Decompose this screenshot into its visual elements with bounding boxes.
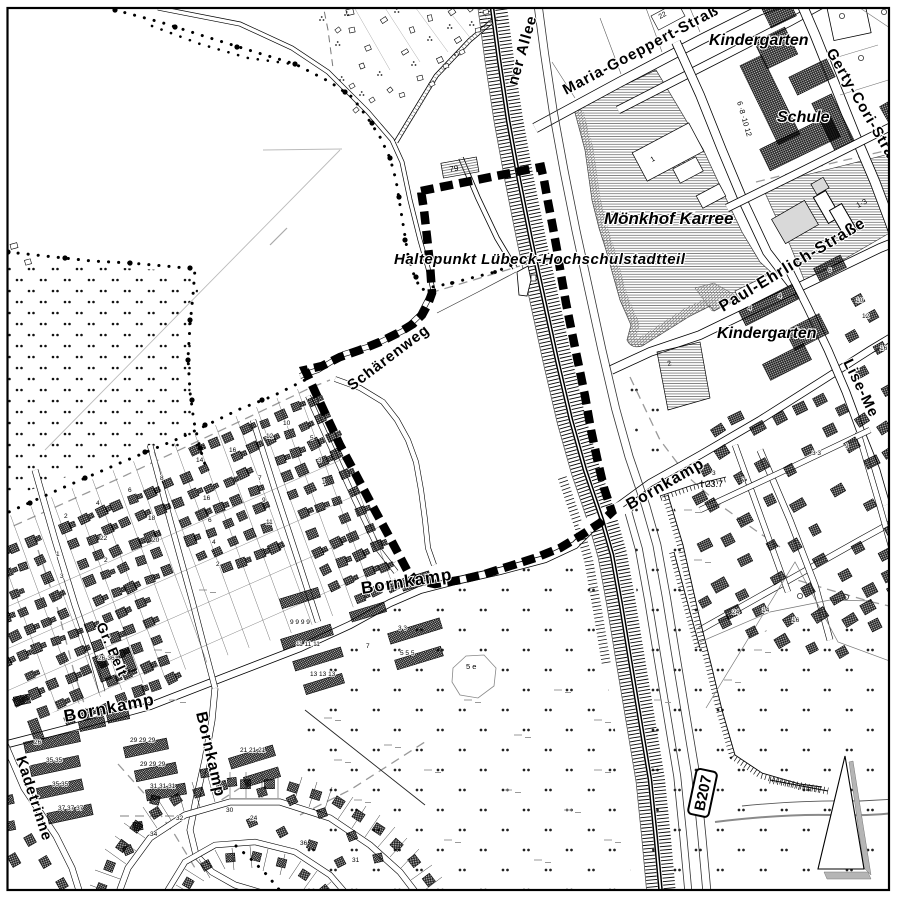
svg-text:9: 9	[845, 443, 849, 450]
svg-text:✝23.7: ✝23.7	[698, 479, 723, 489]
svg-text:13 13 13: 13 13 13	[310, 671, 336, 678]
svg-text:35 35: 35 35	[46, 757, 63, 764]
svg-text:30: 30	[226, 807, 234, 814]
svg-text:9 9 9 9: 9 9 9 9	[290, 619, 310, 626]
svg-text:16: 16	[880, 345, 888, 352]
svg-text:Kindergarten: Kindergarten	[717, 325, 817, 342]
svg-text:2: 2	[64, 513, 68, 520]
svg-text:31 31 31: 31 31 31	[150, 783, 176, 790]
svg-text:31: 31	[352, 857, 360, 864]
svg-text:1: 1	[322, 479, 326, 486]
svg-text:35 35: 35 35	[52, 781, 69, 788]
svg-text:6: 6	[828, 267, 832, 274]
svg-text:24: 24	[732, 609, 740, 616]
svg-text:5: 5	[310, 435, 314, 442]
svg-text:14: 14	[196, 457, 204, 464]
svg-text:6: 6	[128, 487, 132, 494]
svg-text:2: 2	[104, 557, 108, 564]
svg-text:2: 2	[216, 561, 220, 568]
svg-text:4: 4	[748, 305, 752, 312]
svg-text:1: 1	[56, 551, 60, 558]
svg-text:3: 3	[318, 457, 322, 464]
svg-text:11 11 11: 11 11 11	[296, 641, 320, 648]
svg-text:14: 14	[762, 607, 770, 614]
svg-text:26-36: 26-36	[98, 655, 115, 662]
svg-text:32: 32	[176, 815, 184, 822]
svg-text:9: 9	[262, 497, 266, 504]
svg-text:Haltepunkt Lübeck-Hochschulsta: Haltepunkt Lübeck-Hochschulstadtteil	[394, 251, 686, 268]
svg-text:16: 16	[203, 495, 211, 502]
svg-text:3 3: 3 3	[812, 450, 821, 457]
svg-text:Schule: Schule	[777, 109, 830, 126]
svg-text:Mönkhof Karree: Mönkhof Karree	[604, 209, 733, 228]
svg-text:26: 26	[34, 739, 42, 746]
svg-text:24: 24	[250, 815, 258, 822]
svg-text:4: 4	[212, 539, 216, 546]
svg-text:22: 22	[100, 535, 108, 542]
svg-text:11: 11	[266, 519, 273, 526]
svg-text:4: 4	[96, 500, 100, 507]
svg-text:16: 16	[792, 617, 800, 624]
svg-text:Kindergarten: Kindergarten	[709, 32, 809, 49]
svg-text:34: 34	[150, 831, 158, 838]
svg-text:6: 6	[208, 517, 212, 524]
svg-text:3 3: 3 3	[398, 625, 407, 632]
svg-text:3: 3	[60, 573, 64, 580]
svg-text:5 e: 5 e	[466, 662, 476, 671]
svg-text:16: 16	[229, 447, 237, 454]
svg-text:18: 18	[148, 515, 156, 522]
svg-text:3: 3	[712, 470, 716, 477]
svg-text:12: 12	[266, 433, 274, 440]
svg-text:8: 8	[160, 475, 164, 482]
svg-text:29 29 29: 29 29 29	[140, 761, 166, 768]
svg-text:36: 36	[300, 840, 308, 847]
svg-text:7: 7	[742, 477, 746, 484]
svg-text:37 37 37: 37 37 37	[58, 805, 84, 812]
svg-text:21 21 21: 21 21 21	[240, 747, 266, 754]
svg-text:7: 7	[366, 643, 370, 650]
svg-text:10: 10	[283, 420, 291, 427]
svg-text:12: 12	[862, 313, 870, 320]
svg-text:10: 10	[856, 297, 864, 304]
svg-text:7: 7	[258, 475, 262, 482]
svg-text:29 29 29: 29 29 29	[130, 737, 156, 744]
svg-text:20: 20	[152, 537, 160, 544]
svg-text:5 5 5: 5 5 5	[400, 650, 415, 657]
svg-text:4: 4	[778, 293, 782, 300]
